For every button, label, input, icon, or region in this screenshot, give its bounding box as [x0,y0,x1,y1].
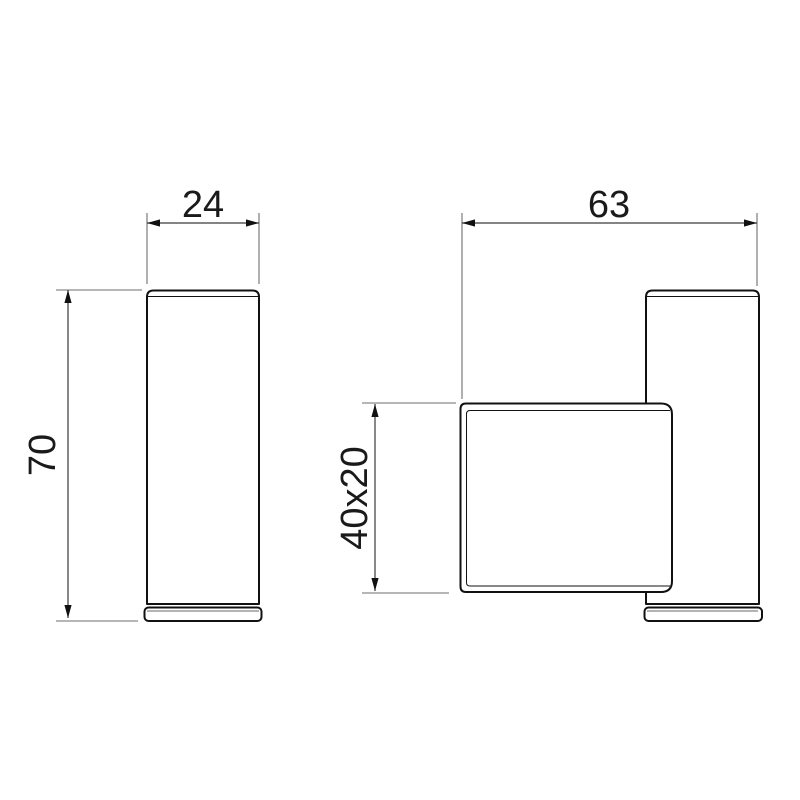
side-view [461,291,763,622]
dimension-label-front-width: 24 [182,184,224,226]
arrowhead-left-icon [462,219,475,226]
dimension-label-hook-profile: 40x20 [334,446,376,550]
arrowhead-left-icon [147,219,160,226]
dimension-hook-profile: 40x20 [334,403,456,593]
front-base-ring [145,608,262,622]
arrowhead-right-icon [744,219,757,226]
arrowhead-down-icon [371,578,378,591]
side-hook-arm [461,404,673,593]
front-body [147,291,259,605]
arrowhead-up-icon [371,404,378,417]
arrowhead-up-icon [64,290,71,303]
technical-drawing: 24 63 70 40x20 [0,0,800,800]
dimension-label-side-depth: 63 [588,184,630,226]
side-base-ring [645,608,763,622]
arrowhead-right-icon [246,219,259,226]
front-view [145,291,262,622]
arrowhead-down-icon [64,605,71,618]
drawing-canvas: 24 63 70 40x20 [0,0,800,800]
dimension-front-width: 24 [147,184,259,284]
dimension-label-front-height: 70 [22,434,64,476]
dimension-front-height: 70 [22,290,142,621]
